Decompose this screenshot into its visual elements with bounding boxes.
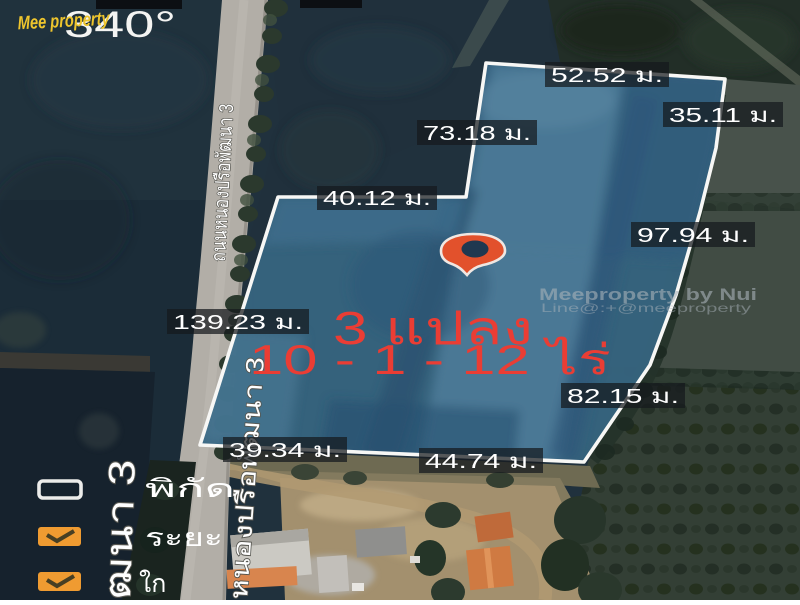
svg-text:52.52 ม.: 52.52 ม. xyxy=(551,65,663,87)
svg-text:35.11 ม.: 35.11 ม. xyxy=(669,105,777,127)
svg-text:40.12 ม.: 40.12 ม. xyxy=(323,188,431,210)
svg-text:ฒนา 3: ฒนา 3 xyxy=(97,459,143,600)
svg-text:97.94 ม.: 97.94 ม. xyxy=(637,225,749,247)
svg-text:10 - 1 - 12 ไร่: 10 - 1 - 12 ไร่ xyxy=(249,336,611,383)
svg-text:139.23 ม.: 139.23 ม. xyxy=(173,312,303,334)
svg-text:พิกัด: พิกัด xyxy=(145,475,235,503)
svg-text:39.34 ม.: 39.34 ม. xyxy=(229,440,341,462)
svg-text:44.74 ม.: 44.74 ม. xyxy=(425,451,537,473)
svg-text:Line@:+@meeproperty: Line@:+@meeproperty xyxy=(541,301,751,315)
svg-text:73.18 ม.: 73.18 ม. xyxy=(423,123,531,145)
svg-text:ใก: ใก xyxy=(139,569,166,598)
svg-text:ระยะ: ระยะ xyxy=(145,524,223,552)
svg-text:82.15 ม.: 82.15 ม. xyxy=(567,386,679,408)
